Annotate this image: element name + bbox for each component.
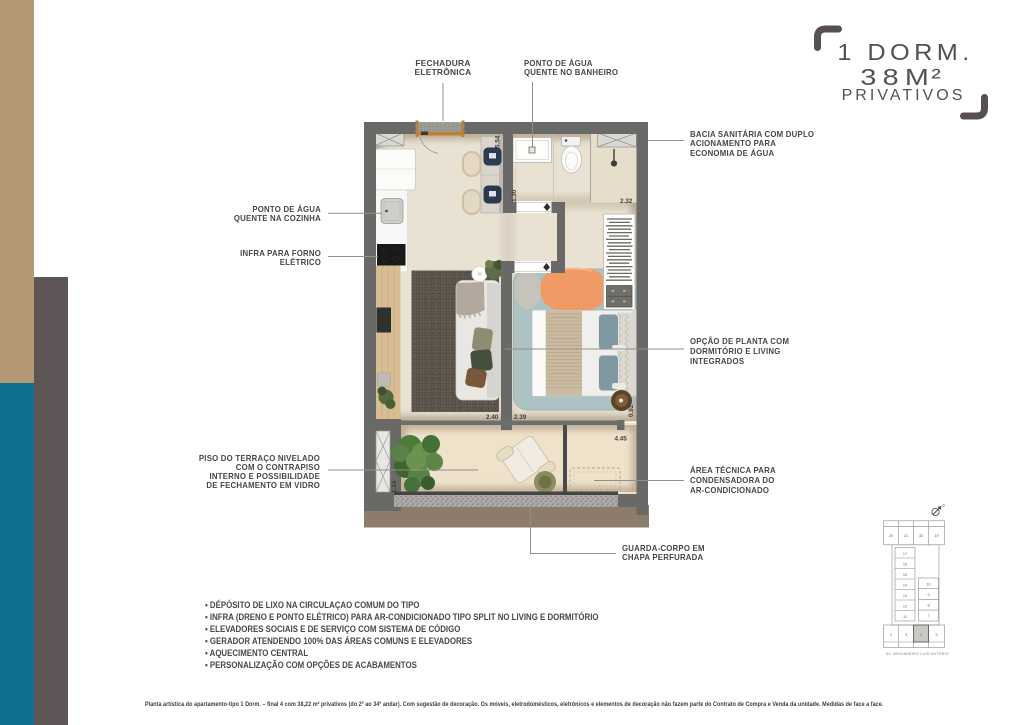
- svg-text:17: 17: [903, 552, 907, 556]
- svg-text:9: 9: [927, 593, 929, 597]
- svg-text:8: 8: [927, 604, 929, 608]
- svg-text:5.54: 5.54: [495, 135, 502, 148]
- svg-text:4: 4: [920, 633, 922, 637]
- svg-text:AV. BRIGADEIRO LUIS ANTÔNIO: AV. BRIGADEIRO LUIS ANTÔNIO: [886, 651, 949, 656]
- svg-text:5: 5: [935, 633, 937, 637]
- svg-text:19: 19: [934, 534, 938, 538]
- svg-text:2.40: 2.40: [486, 414, 499, 421]
- svg-text:4.45: 4.45: [615, 436, 628, 443]
- svg-text:21: 21: [904, 534, 908, 538]
- svg-text:2: 2: [890, 633, 892, 637]
- svg-text:15: 15: [903, 573, 907, 577]
- svg-text:3: 3: [905, 633, 907, 637]
- svg-text:1.30: 1.30: [511, 189, 518, 202]
- svg-text:12: 12: [903, 605, 907, 609]
- svg-text:0.92: 0.92: [628, 404, 635, 417]
- svg-text:2.32: 2.32: [620, 198, 633, 205]
- svg-text:1.14: 1.14: [391, 480, 398, 493]
- svg-text:7: 7: [927, 614, 929, 618]
- svg-text:20: 20: [889, 534, 893, 538]
- svg-text:10: 10: [926, 583, 930, 587]
- svg-text:11: 11: [903, 615, 907, 619]
- svg-text:30: 30: [919, 534, 923, 538]
- svg-text:13: 13: [903, 594, 907, 598]
- svg-text:14: 14: [903, 584, 907, 588]
- svg-text:16: 16: [903, 563, 907, 567]
- svg-text:2.39: 2.39: [514, 414, 527, 421]
